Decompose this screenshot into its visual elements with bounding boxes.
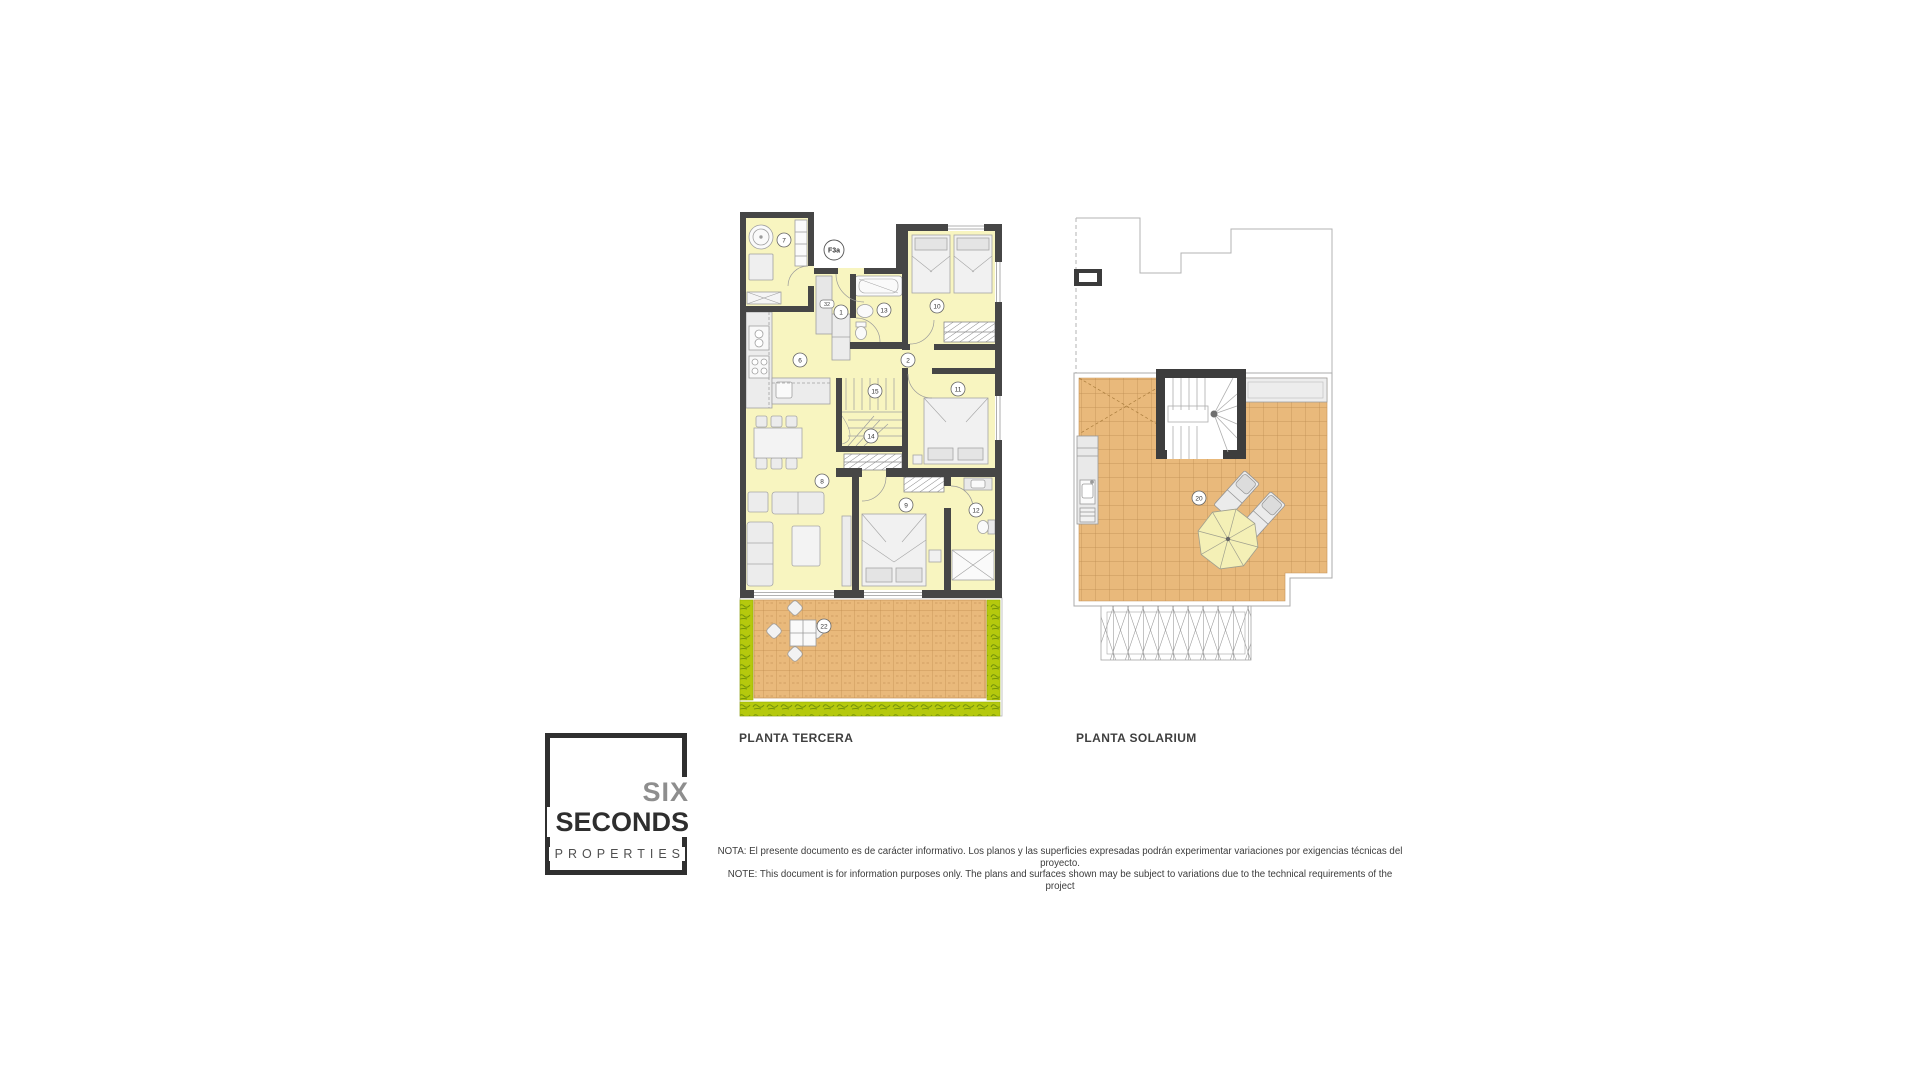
room-number-22: 22 <box>820 623 828 630</box>
planter <box>1244 378 1327 402</box>
room-number-10: 10 <box>933 303 941 310</box>
page: 32 <box>0 0 1920 1080</box>
chimney <box>1074 269 1102 286</box>
terrace <box>740 598 1002 716</box>
floor-plan-solarium: 20 <box>1068 212 1348 672</box>
outdoor-kitchenette <box>1077 436 1098 524</box>
plan-title-solarium: PLANTA SOLARIUM <box>1076 731 1197 745</box>
utility-shaft: 32 <box>816 276 834 334</box>
sofa-3-seat <box>747 522 773 586</box>
room-number-15: 15 <box>871 388 879 395</box>
room-number-2: 2 <box>906 357 910 364</box>
terrace-door-bedroom <box>864 590 922 598</box>
roof-outline <box>1076 218 1332 373</box>
stair-post <box>1211 411 1218 418</box>
room-number-1: 1 <box>839 309 843 316</box>
room-number-9: 9 <box>904 502 908 509</box>
hedge-left <box>740 600 753 700</box>
hedge-bottom <box>740 702 1000 716</box>
floor-plan-tercera: 32 <box>738 210 1006 722</box>
toilet-1 <box>856 327 867 340</box>
room-number-8: 8 <box>820 478 824 485</box>
tv-unit <box>842 516 851 586</box>
wardrobe-master <box>904 477 944 492</box>
logo-word-seconds: SECONDS <box>547 807 689 837</box>
plan-title-tercera: PLANTA TERCERA <box>739 731 853 745</box>
room-number-6: 6 <box>798 357 802 364</box>
room-number-7: 7 <box>782 237 786 244</box>
coffee-table <box>792 526 820 566</box>
hedge-right <box>987 600 1000 700</box>
room-number-20: 20 <box>1195 495 1203 502</box>
disclaimer-note: NOTA: El presente documento es de caráct… <box>715 846 1405 892</box>
toilet-2 <box>978 521 989 534</box>
stair-enclosure <box>1156 369 1246 459</box>
room-number-14: 14 <box>867 433 875 440</box>
sink-1 <box>857 305 873 318</box>
note-line-es: NOTA: El presente documento es de caráct… <box>715 846 1405 869</box>
dining-table <box>754 428 802 458</box>
room-number-12: 12 <box>972 507 980 514</box>
note-line-en: NOTE: This document is for information p… <box>715 869 1405 892</box>
unit-label: F3a <box>828 248 840 255</box>
pergola <box>1101 606 1251 660</box>
room-number-11: 11 <box>955 386 962 393</box>
armchair <box>748 492 768 512</box>
room-number-13: 13 <box>880 307 888 314</box>
room-badges: 20 <box>1192 491 1206 505</box>
logo-word-six: SIX <box>632 777 689 807</box>
logo-word-properties: PROPERTIES <box>549 847 685 861</box>
terrace-door-living <box>754 590 834 598</box>
room-number-32: 32 <box>824 302 830 308</box>
six-seconds-logo: SIX SECONDS PROPERTIES <box>545 733 687 875</box>
